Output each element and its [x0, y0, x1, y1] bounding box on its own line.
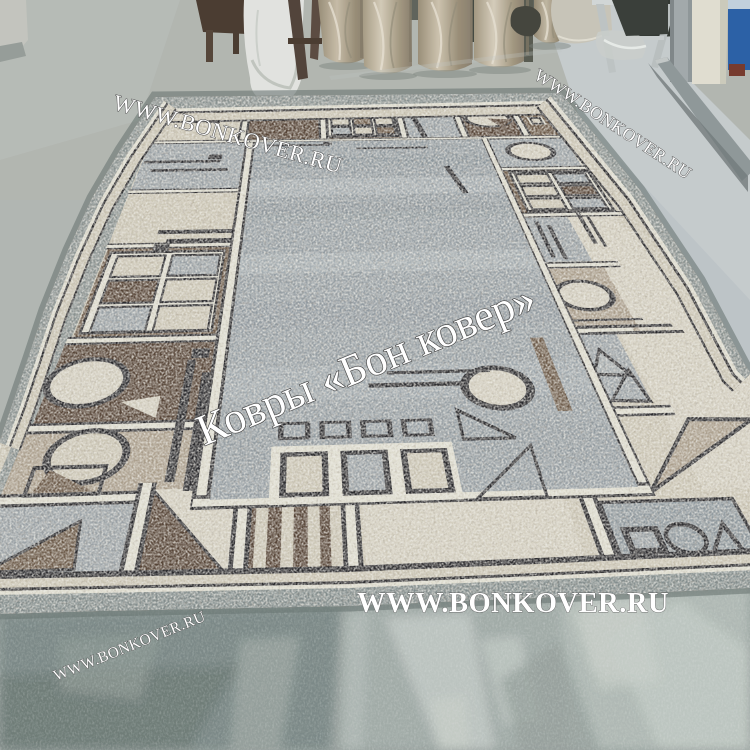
svg-text:WWW.BONKOVER.RU: WWW.BONKOVER.RU — [357, 588, 669, 619]
